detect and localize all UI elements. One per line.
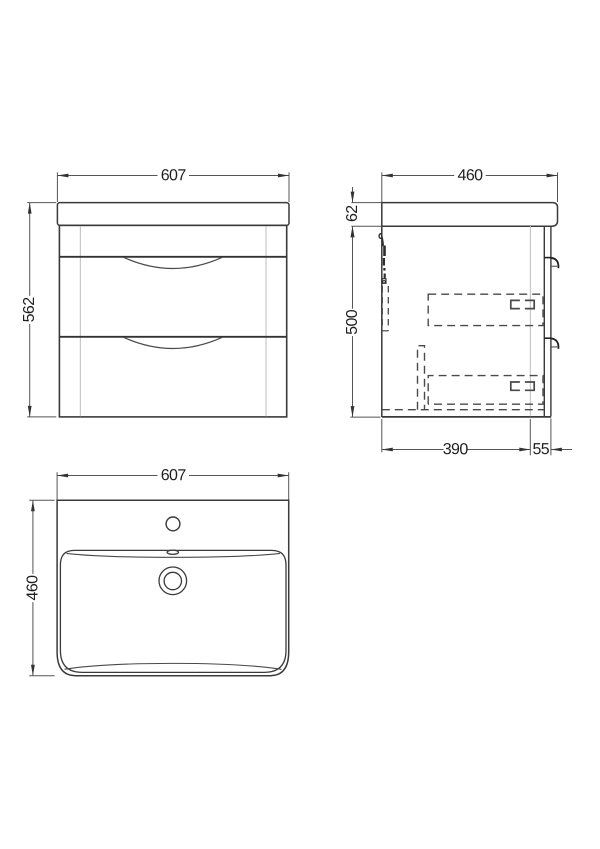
svg-text:562: 562 (21, 297, 38, 323)
svg-text:460: 460 (458, 167, 484, 184)
svg-text:390: 390 (443, 441, 469, 458)
svg-text:607: 607 (161, 167, 187, 184)
svg-text:607: 607 (161, 467, 187, 484)
svg-text:460: 460 (24, 575, 41, 601)
svg-text:55: 55 (532, 441, 549, 458)
svg-text:500: 500 (344, 309, 361, 335)
svg-text:62: 62 (344, 205, 361, 222)
